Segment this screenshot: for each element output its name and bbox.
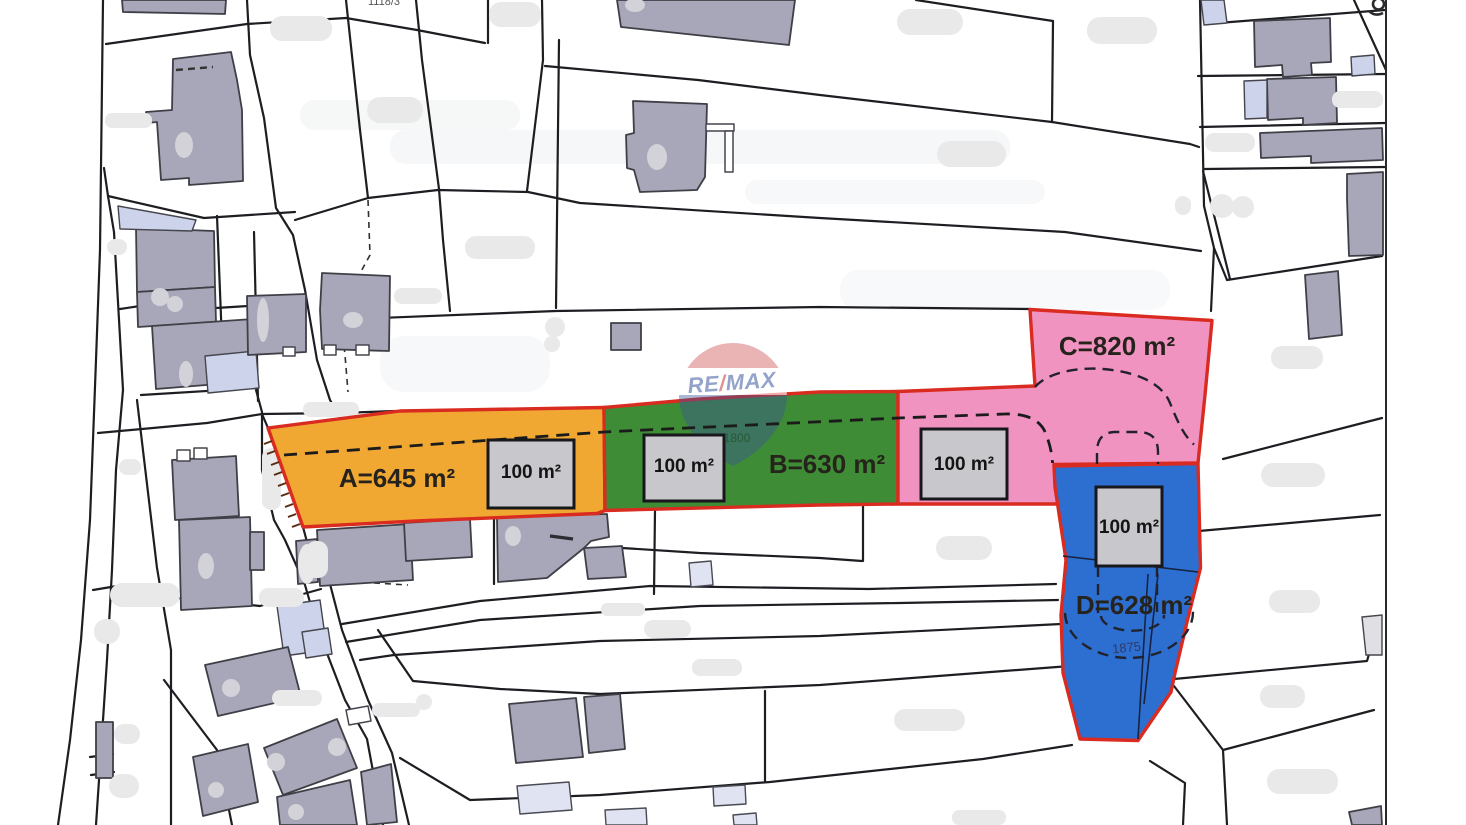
svg-text:B=630 m²: B=630 m²	[769, 449, 886, 479]
svg-text:100 m²: 100 m²	[501, 462, 561, 483]
svg-text:100 m²: 100 m²	[1099, 517, 1159, 538]
svg-text:100 m²: 100 m²	[934, 454, 994, 475]
svg-text:D=628 m²: D=628 m²	[1076, 590, 1193, 620]
svg-text:1800: 1800	[724, 431, 751, 445]
svg-text:1875: 1875	[1111, 639, 1141, 657]
svg-text:100 m²: 100 m²	[654, 456, 714, 477]
svg-text:C=820 m²: C=820 m²	[1059, 331, 1176, 361]
svg-text:1118/3: 1118/3	[368, 0, 400, 8]
svg-text:A=645 m²: A=645 m²	[339, 463, 456, 493]
